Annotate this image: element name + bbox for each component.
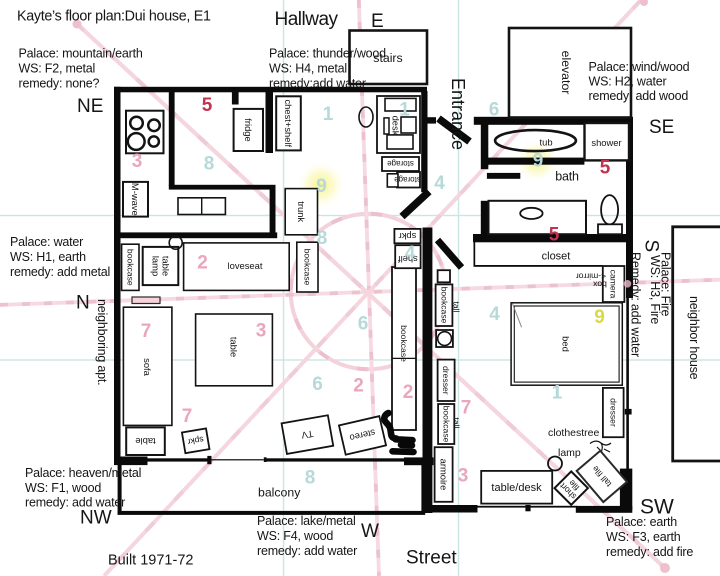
- svg-text:table: table: [228, 337, 239, 357]
- svg-text:9: 9: [594, 307, 605, 328]
- svg-text:Palace: mountain/earth: Palace: mountain/earth: [19, 47, 143, 61]
- svg-text:Palace: lake/metal: Palace: lake/metal: [257, 514, 356, 528]
- svg-text:WS: H3, Fire: WS: H3, Fire: [648, 255, 662, 324]
- svg-text:8: 8: [305, 468, 316, 489]
- svg-text:6: 6: [489, 100, 500, 121]
- svg-text:1: 1: [399, 100, 410, 121]
- svg-text:E: E: [371, 11, 384, 32]
- svg-text:5: 5: [549, 225, 560, 246]
- svg-text:table: table: [135, 436, 155, 447]
- svg-text:tub: tub: [540, 137, 553, 148]
- svg-text:tall: tall: [452, 418, 462, 429]
- svg-text:N: N: [76, 293, 90, 314]
- svg-text:Kayte’s floor plan:Dui house,: Kayte’s floor plan:Dui house, E1: [17, 9, 211, 25]
- svg-text:remedy: add water: remedy: add water: [257, 544, 357, 558]
- svg-text:5: 5: [202, 95, 213, 116]
- svg-text:bookcase: bookcase: [441, 406, 451, 443]
- svg-text:6: 6: [312, 374, 323, 395]
- svg-text:shower: shower: [591, 137, 621, 148]
- svg-text:neighbor house: neighbor house: [687, 296, 701, 380]
- svg-text:WS: H4, metal: WS: H4, metal: [269, 62, 347, 76]
- svg-text:Palace: thunder/wood: Palace: thunder/wood: [269, 47, 386, 61]
- svg-text:Remedy: add water: Remedy: add water: [629, 252, 643, 357]
- svg-text:2: 2: [197, 253, 208, 274]
- svg-text:3: 3: [256, 321, 267, 342]
- svg-text:tablelamp: tablelamp: [151, 256, 172, 276]
- svg-text:8: 8: [204, 154, 215, 175]
- svg-text:remedy: add metal: remedy: add metal: [10, 265, 110, 279]
- svg-text:M-wave: M-wave: [130, 183, 141, 216]
- svg-text:camera: camera: [608, 270, 618, 299]
- svg-text:lamp: lamp: [558, 447, 581, 459]
- svg-text:fridge: fridge: [243, 118, 254, 141]
- svg-text:balcony: balcony: [258, 486, 301, 500]
- svg-text:storage: storage: [394, 175, 421, 184]
- svg-text:armoire: armoire: [439, 459, 450, 491]
- svg-text:Palace: heaven/metal: Palace: heaven/metal: [25, 466, 141, 480]
- svg-text:4: 4: [434, 173, 445, 194]
- svg-text:WS: F4, wood: WS: F4, wood: [257, 529, 333, 543]
- svg-text:loveseat: loveseat: [228, 260, 263, 271]
- svg-text:Palace: water: Palace: water: [10, 235, 83, 249]
- svg-text:Built 1971-72: Built 1971-72: [108, 553, 193, 569]
- svg-text:remedy: none?: remedy: none?: [19, 77, 100, 91]
- svg-text:Street: Street: [406, 548, 457, 569]
- svg-text:dresser: dresser: [441, 366, 451, 395]
- svg-text:7: 7: [461, 398, 472, 419]
- svg-text:S: S: [641, 240, 662, 253]
- svg-text:9: 9: [533, 151, 544, 172]
- svg-text:WS: H2, water: WS: H2, water: [589, 75, 667, 89]
- svg-text:bookcase: bookcase: [125, 249, 135, 286]
- svg-text:NW: NW: [80, 508, 112, 529]
- svg-text:6: 6: [358, 314, 369, 335]
- svg-text:storage: storage: [387, 159, 414, 168]
- svg-text:elevator: elevator: [559, 51, 573, 95]
- svg-text:3: 3: [132, 151, 143, 172]
- svg-text:9: 9: [316, 176, 327, 197]
- svg-text:bed: bed: [561, 336, 572, 352]
- svg-text:3: 3: [458, 466, 469, 487]
- svg-text:clothestree: clothestree: [548, 427, 600, 439]
- svg-text:NE: NE: [77, 96, 103, 117]
- svg-text:remedy: add fire: remedy: add fire: [606, 545, 693, 559]
- svg-text:Palace: wind/wood: Palace: wind/wood: [589, 60, 690, 74]
- svg-text:2: 2: [353, 376, 364, 397]
- svg-text:1: 1: [552, 383, 563, 404]
- svg-text:Entrance: Entrance: [448, 78, 468, 150]
- svg-text:4: 4: [405, 243, 416, 264]
- svg-text:Hallway: Hallway: [275, 9, 339, 30]
- svg-text:bookcase: bookcase: [439, 287, 449, 324]
- svg-text:bookcase: bookcase: [302, 249, 312, 286]
- svg-text:box: box: [592, 279, 607, 289]
- svg-text:7: 7: [141, 321, 152, 342]
- svg-text:tall: tall: [452, 302, 462, 313]
- svg-text:SW: SW: [640, 496, 674, 519]
- svg-text:4: 4: [489, 304, 500, 325]
- svg-text:WS: F3, earth: WS: F3, earth: [606, 530, 681, 544]
- svg-text:1: 1: [323, 104, 334, 125]
- svg-text:table/desk: table/desk: [491, 482, 542, 494]
- svg-text:neighboring apt.: neighboring apt.: [95, 299, 109, 385]
- svg-text:spkr: spkr: [399, 231, 417, 242]
- svg-text:chest+shelf: chest+shelf: [283, 99, 294, 147]
- svg-text:bath: bath: [555, 170, 579, 184]
- svg-text:8: 8: [317, 228, 328, 249]
- svg-text:5: 5: [600, 158, 611, 179]
- svg-text:WS: H1, earth: WS: H1, earth: [10, 250, 86, 264]
- svg-text:bookcase: bookcase: [399, 325, 409, 362]
- svg-text:remedy: add wood: remedy: add wood: [589, 89, 689, 103]
- svg-text:dresser: dresser: [608, 398, 618, 427]
- svg-text:WS: F1, wood: WS: F1, wood: [25, 481, 101, 495]
- svg-text:W: W: [361, 521, 379, 542]
- svg-text:SE: SE: [649, 117, 674, 138]
- svg-text:7: 7: [182, 406, 193, 427]
- svg-text:sofa: sofa: [142, 358, 153, 377]
- svg-text:remedy:add water: remedy:add water: [269, 77, 366, 91]
- svg-text:trunk: trunk: [296, 201, 307, 222]
- svg-text:closet: closet: [542, 251, 571, 263]
- svg-text:2: 2: [403, 382, 414, 403]
- svg-text:WS: F2, metal: WS: F2, metal: [19, 62, 96, 76]
